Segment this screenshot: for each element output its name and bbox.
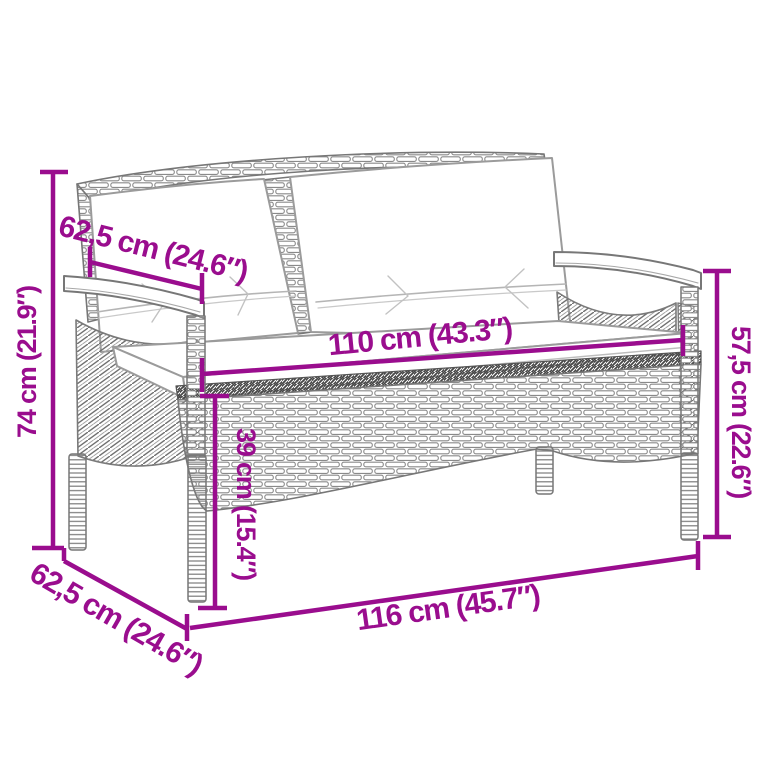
dimension-label-overall-height: 74 cm (21.9″) bbox=[12, 286, 42, 438]
diagram-canvas: 74 cm (21.9″) 62,5 cm (24.6″) 110 cm (43… bbox=[0, 0, 767, 767]
dimension-diagram: 74 cm (21.9″) 62,5 cm (24.6″) 110 cm (43… bbox=[0, 0, 767, 767]
back-cushion-right bbox=[290, 158, 571, 334]
dimension-label-armrest-height: 57,5 cm (22.6″) bbox=[726, 326, 756, 498]
dimension-label-seat-height: 39 cm (15.4″) bbox=[231, 428, 261, 580]
